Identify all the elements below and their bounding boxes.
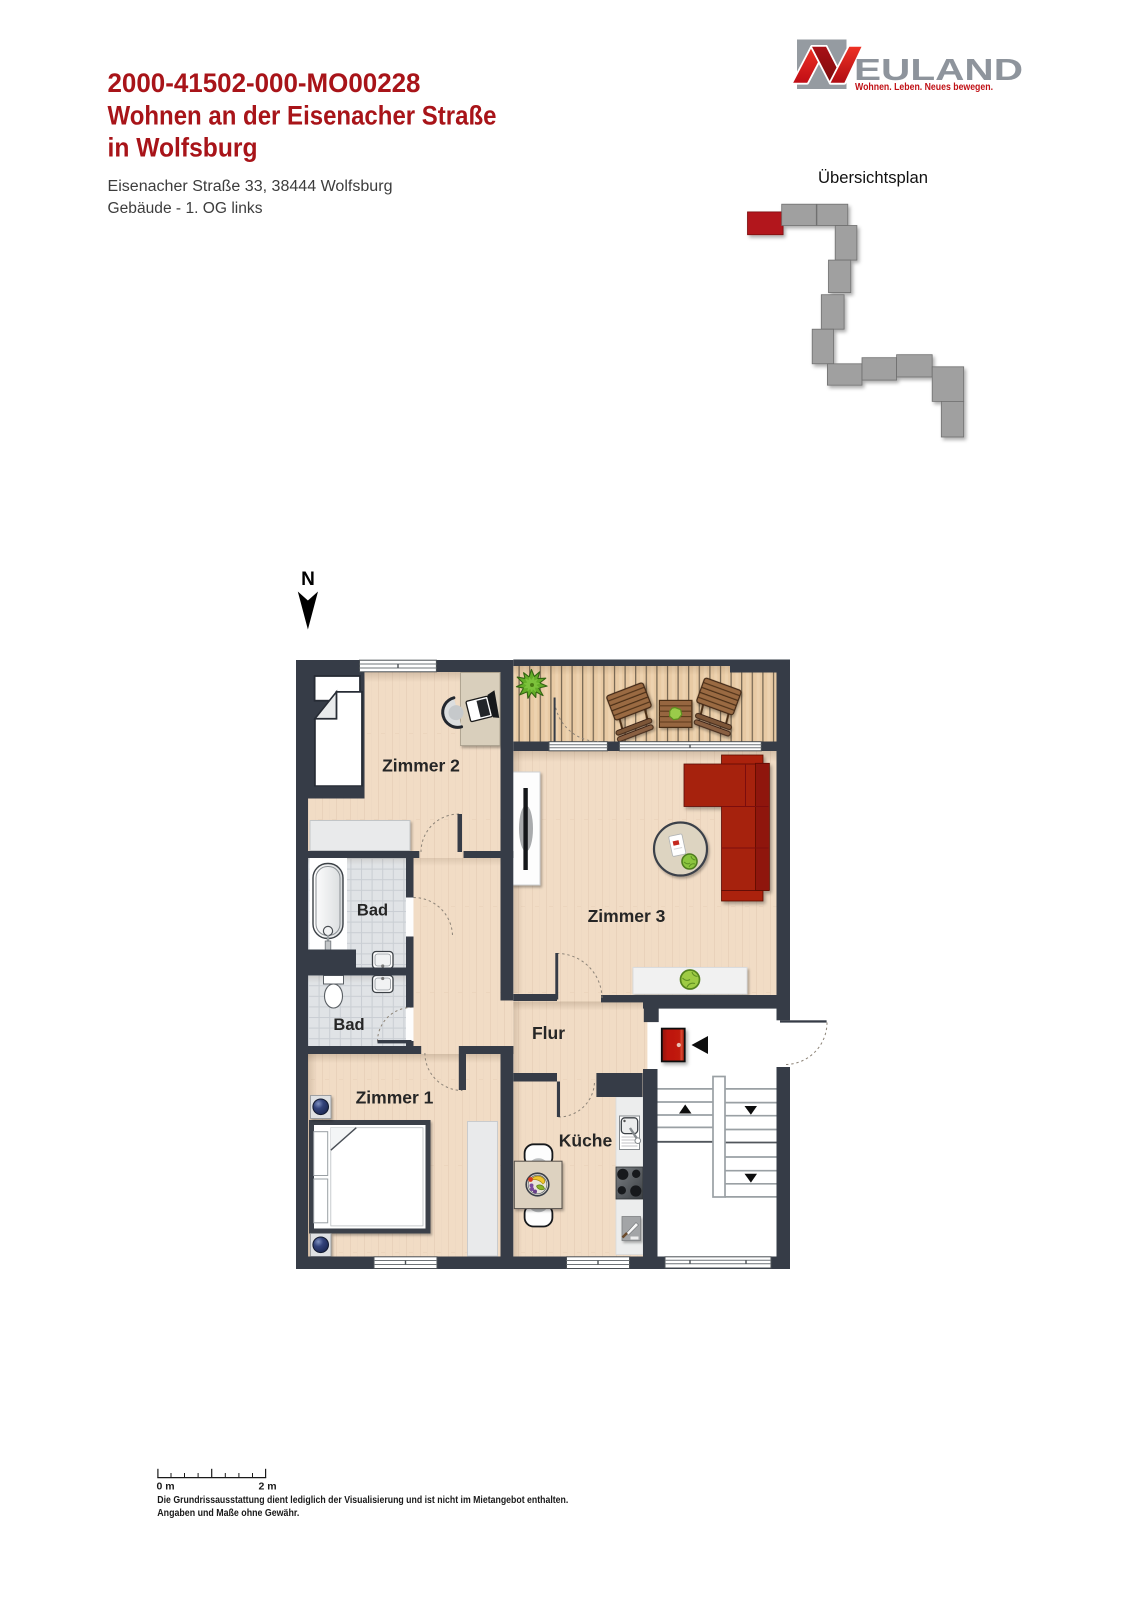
svg-text:Zimmer 2: Zimmer 2 [382,756,460,776]
svg-text:Flur: Flur [532,1023,565,1043]
svg-text:2000-41502-000-MO00228: 2000-41502-000-MO00228 [108,68,421,98]
svg-text:N: N [301,569,315,590]
svg-text:Wohnen an der Eisenacher Straß: Wohnen an der Eisenacher Straße [108,101,497,131]
svg-text:Zimmer 3: Zimmer 3 [588,906,666,926]
svg-text:Bad: Bad [357,902,388,920]
svg-text:Eisenacher Straße 33, 38444 Wo: Eisenacher Straße 33, 38444 Wolfsburg [108,178,393,195]
svg-text:Angaben und Maße ohne Gewähr.: Angaben und Maße ohne Gewähr. [157,1508,299,1519]
svg-text:Die Grundrissausstattung dient: Die Grundrissausstattung dient lediglich… [157,1495,568,1506]
svg-text:Wohnen. Leben. Neues bewegen.: Wohnen. Leben. Neues bewegen. [855,81,993,93]
svg-text:2 m: 2 m [259,1481,277,1493]
svg-text:Bad: Bad [333,1016,364,1034]
svg-text:0 m: 0 m [157,1481,175,1493]
svg-text:Küche: Küche [559,1131,613,1151]
svg-text:Übersichtsplan: Übersichtsplan [818,168,928,187]
svg-text:in Wolfsburg: in Wolfsburg [108,133,258,163]
svg-text:Gebäude - 1. OG links: Gebäude - 1. OG links [108,200,263,217]
svg-text:Zimmer 1: Zimmer 1 [356,1088,434,1108]
